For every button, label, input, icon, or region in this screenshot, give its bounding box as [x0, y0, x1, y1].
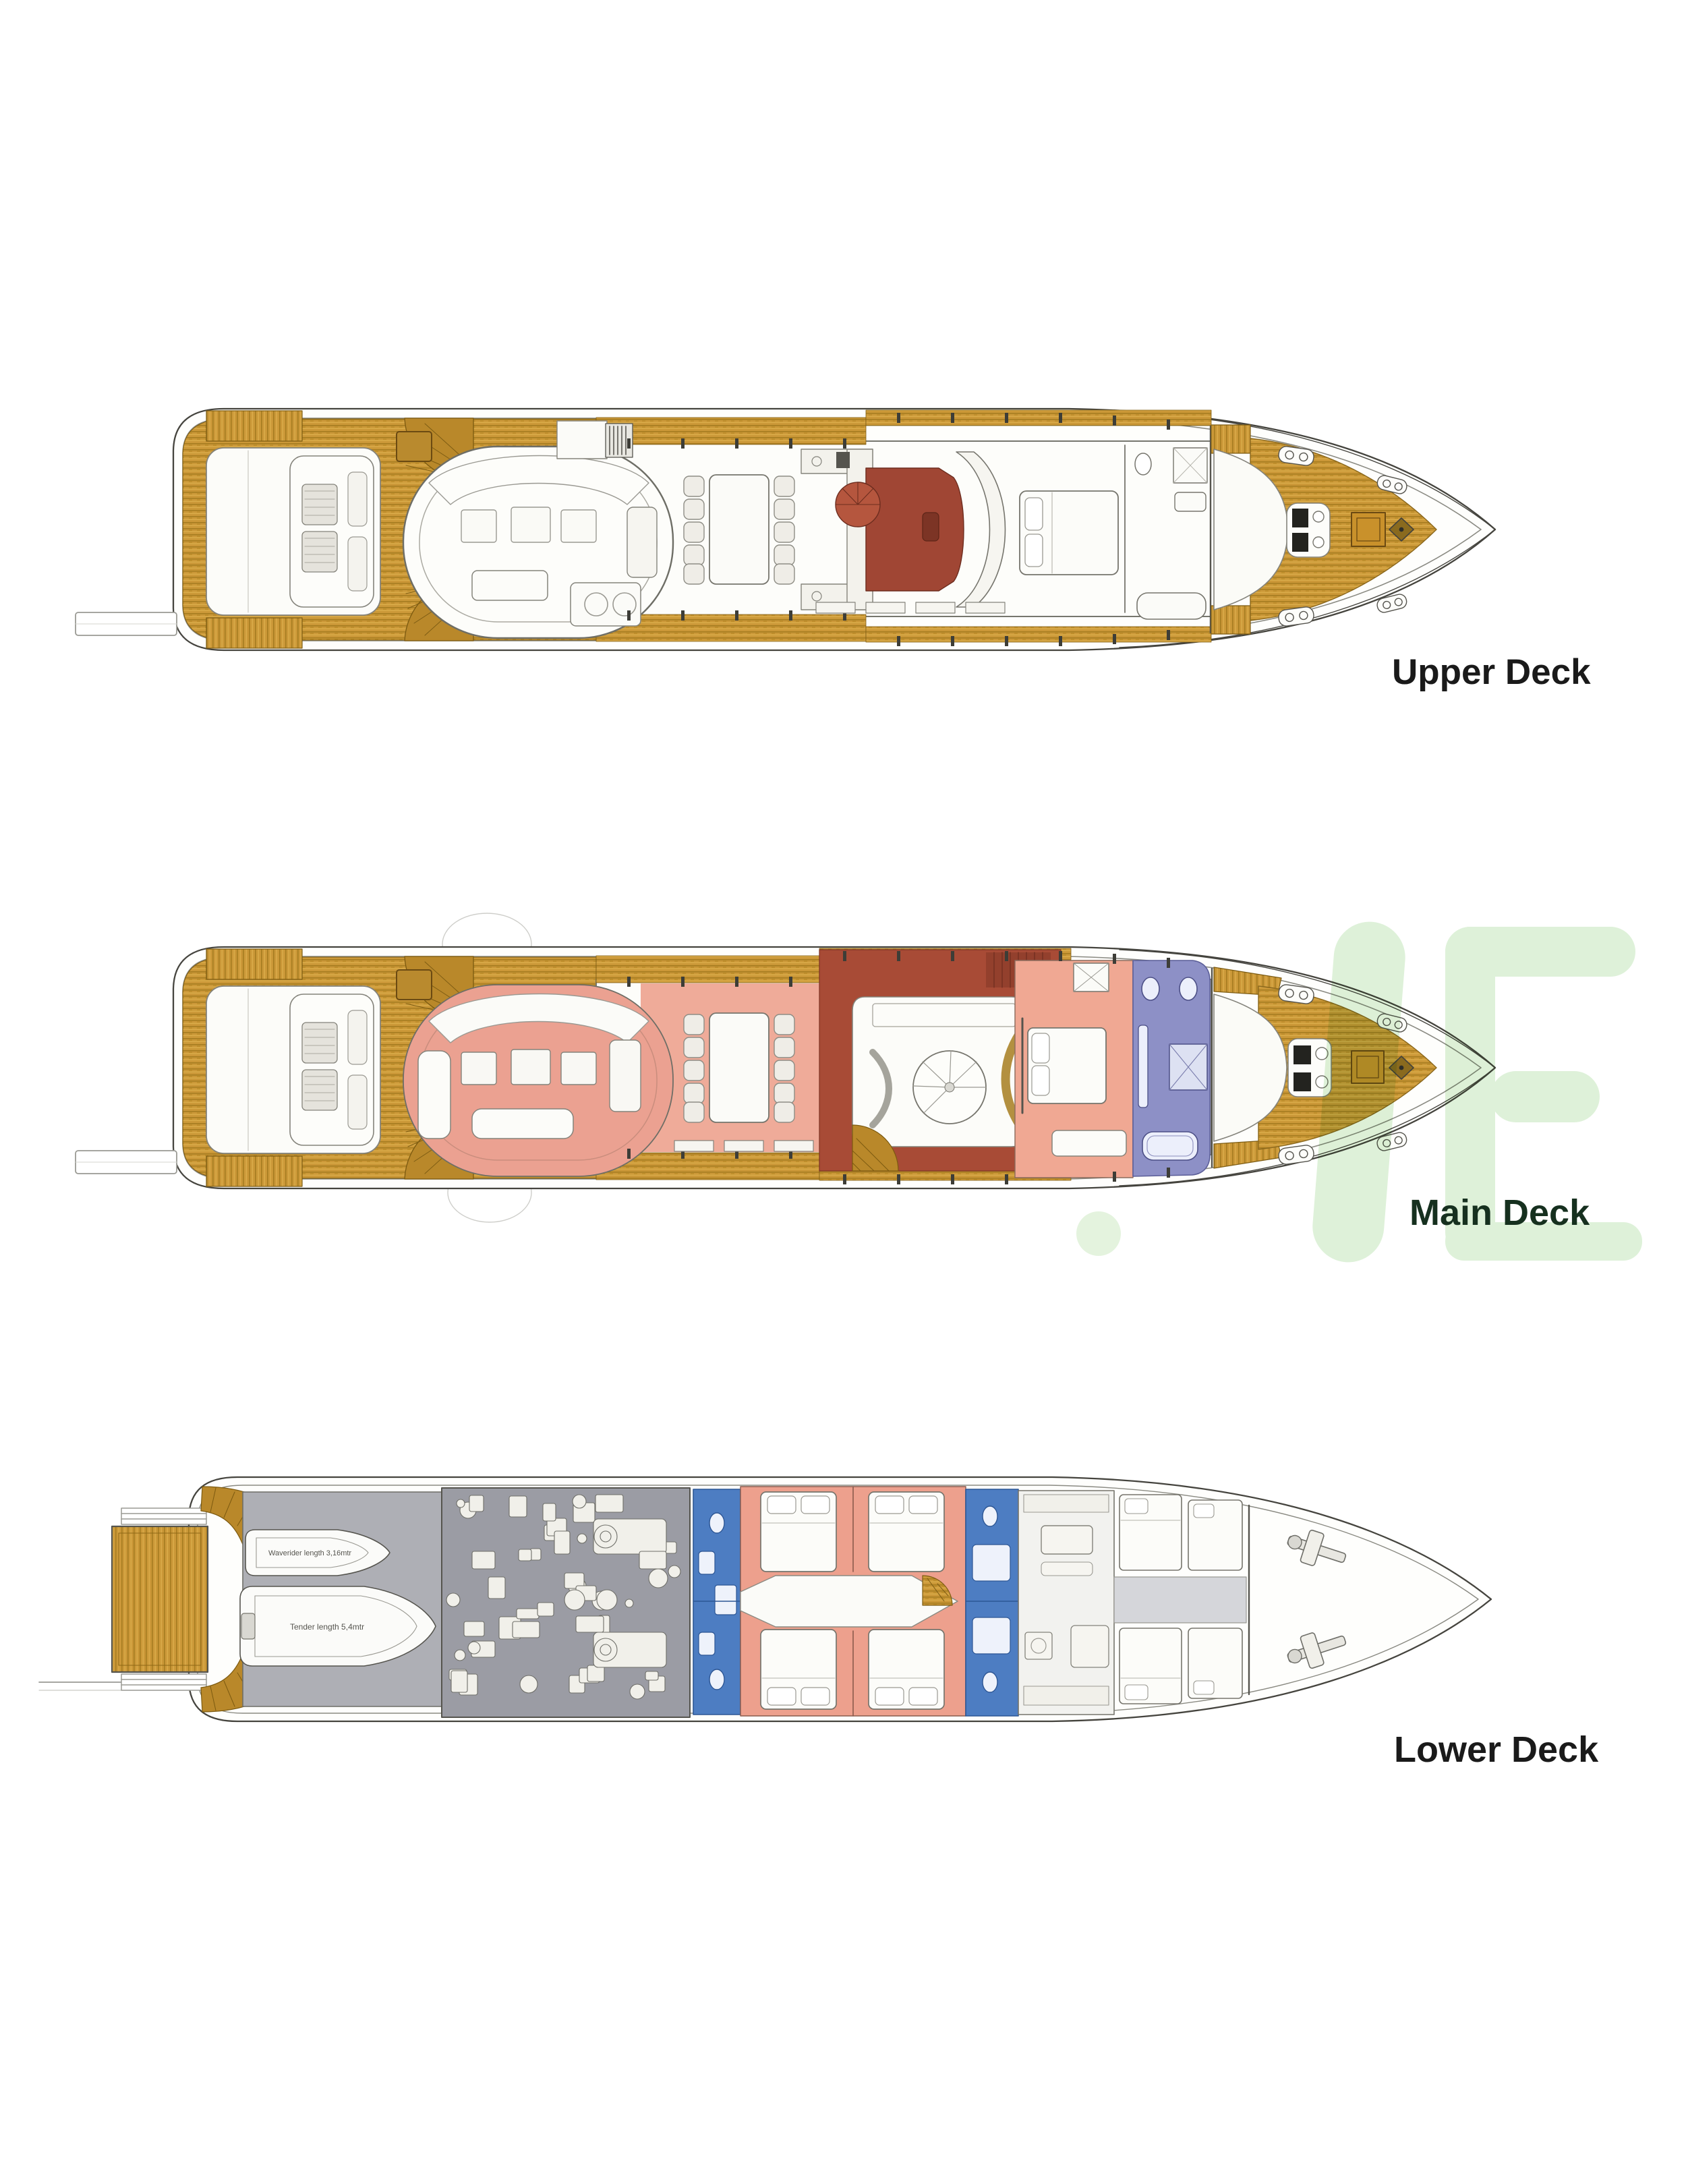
svg-text:Upper Deck: Upper Deck: [1392, 652, 1591, 692]
svg-text:Tender length 5,4mtr: Tender length 5,4mtr: [290, 1622, 364, 1632]
svg-text:Waverider length 3,16mtr: Waverider length 3,16mtr: [268, 1549, 351, 1557]
svg-text:Main Deck: Main Deck: [1409, 1192, 1590, 1233]
svg-text:Lower Deck: Lower Deck: [1394, 1729, 1599, 1770]
